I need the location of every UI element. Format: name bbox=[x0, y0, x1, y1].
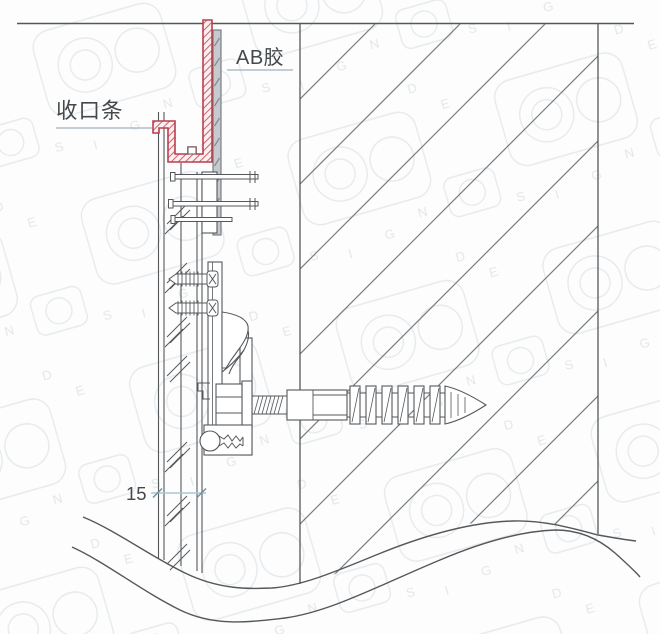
keyhole-slot bbox=[200, 425, 252, 455]
trim-clip-tab bbox=[188, 147, 196, 154]
watermark-layer bbox=[0, 0, 660, 634]
ab-glue-label: AB胶 bbox=[236, 46, 284, 69]
technical-drawing-canvas: D E S I G N bbox=[0, 0, 660, 634]
bolt-head bbox=[216, 381, 252, 429]
anchor-sleeve bbox=[287, 390, 347, 420]
detail-drawing: D E S I G N bbox=[0, 0, 660, 634]
trim-strip-label: 收口条 bbox=[56, 99, 124, 123]
callout-ab-glue: AB胶 bbox=[227, 46, 293, 70]
dimension-15-label: 15 bbox=[126, 483, 147, 504]
